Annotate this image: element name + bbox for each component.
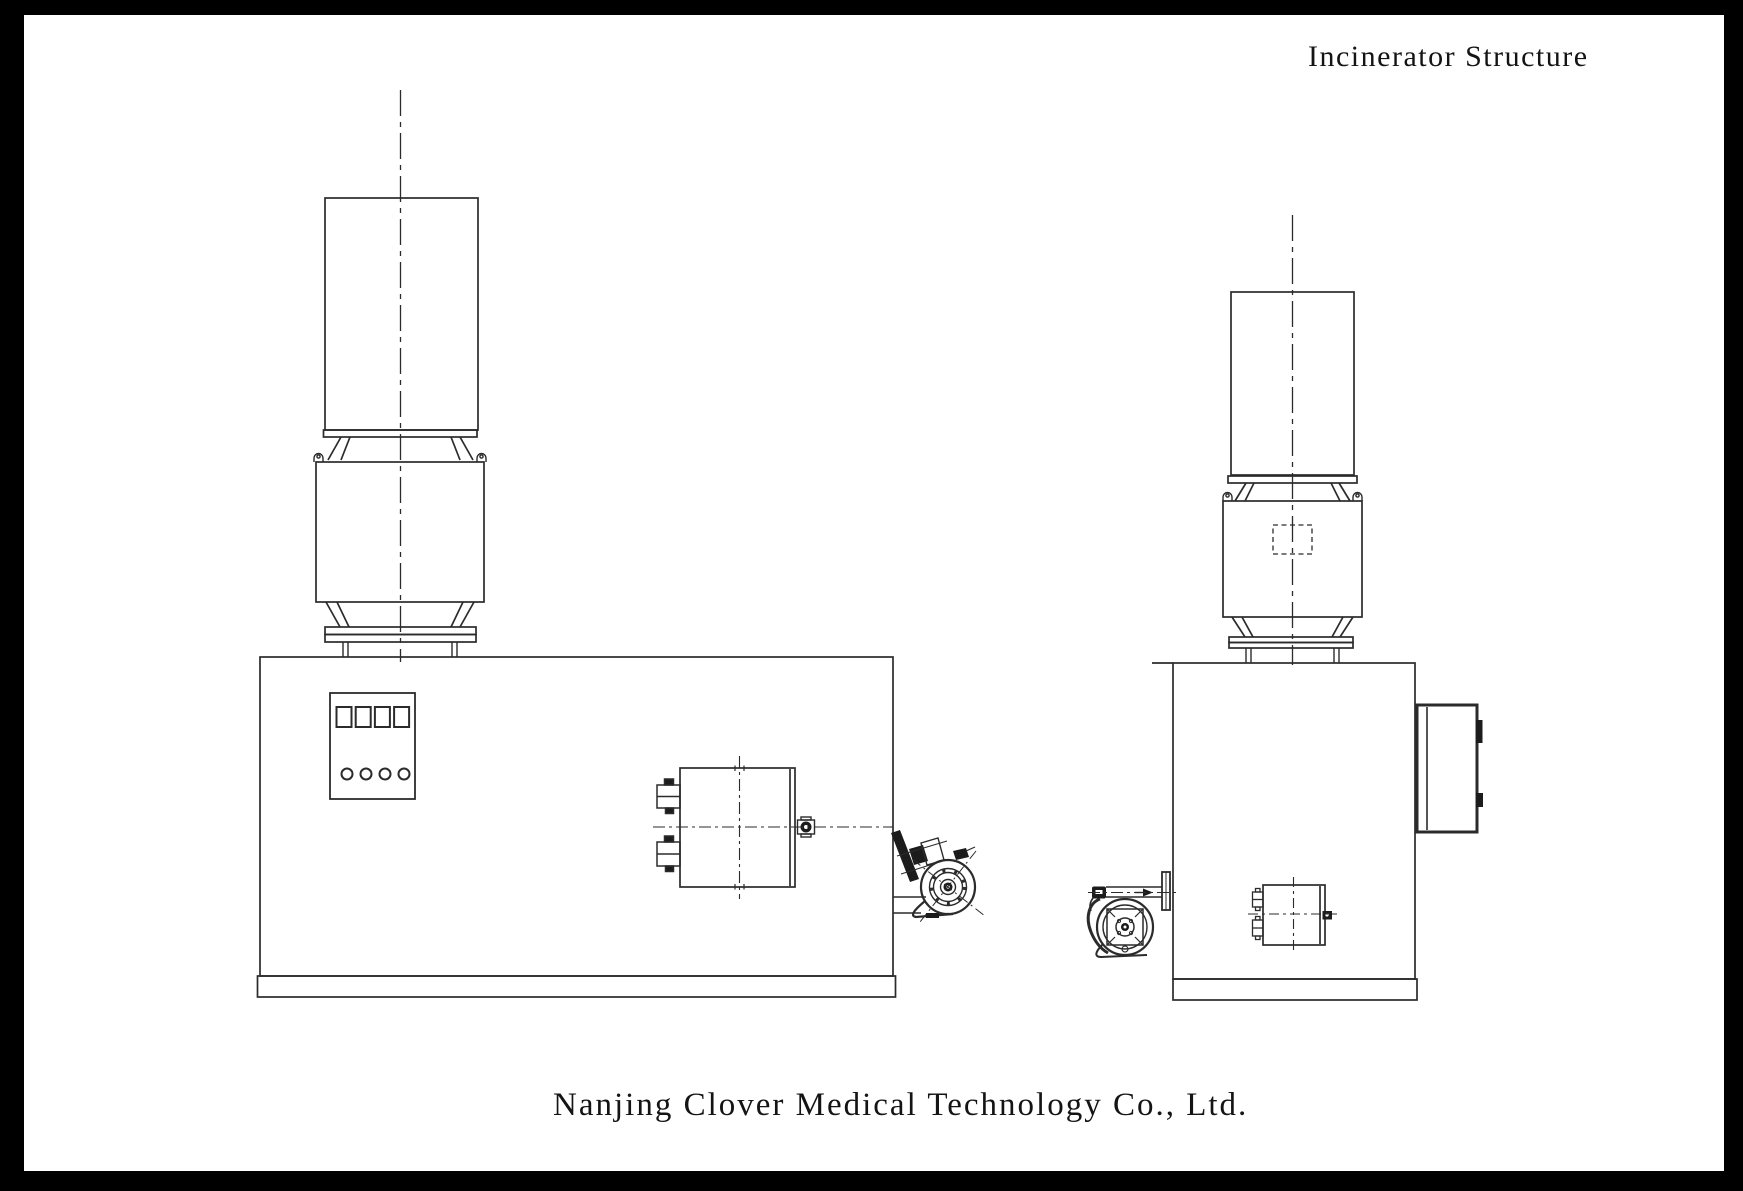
side-body-flange <box>1229 637 1353 648</box>
side-burner-housing <box>1248 877 1337 953</box>
side-main-body <box>1173 663 1415 979</box>
front-main-body <box>260 657 893 976</box>
side-burner-port <box>1323 911 1333 920</box>
drawing-sheet: Incinerator Structure Nanjing Clover Med… <box>0 0 1743 1191</box>
side-base-skirt <box>1173 979 1417 1000</box>
burner-connection-stubs <box>657 779 680 872</box>
front-burner-housing <box>653 756 893 899</box>
side-air-blower <box>1088 872 1180 957</box>
control-panel-displays <box>337 707 410 727</box>
front-base-skirt <box>258 976 896 997</box>
side-view <box>1088 215 1483 1000</box>
side-loading-door <box>1417 705 1483 832</box>
incinerator-technical-drawing <box>0 0 1743 1191</box>
front-view <box>258 90 984 997</box>
front-air-blower <box>891 830 984 922</box>
control-panel <box>330 693 415 799</box>
control-panel-knobs <box>342 769 410 780</box>
front-chimney-stack <box>325 198 478 430</box>
